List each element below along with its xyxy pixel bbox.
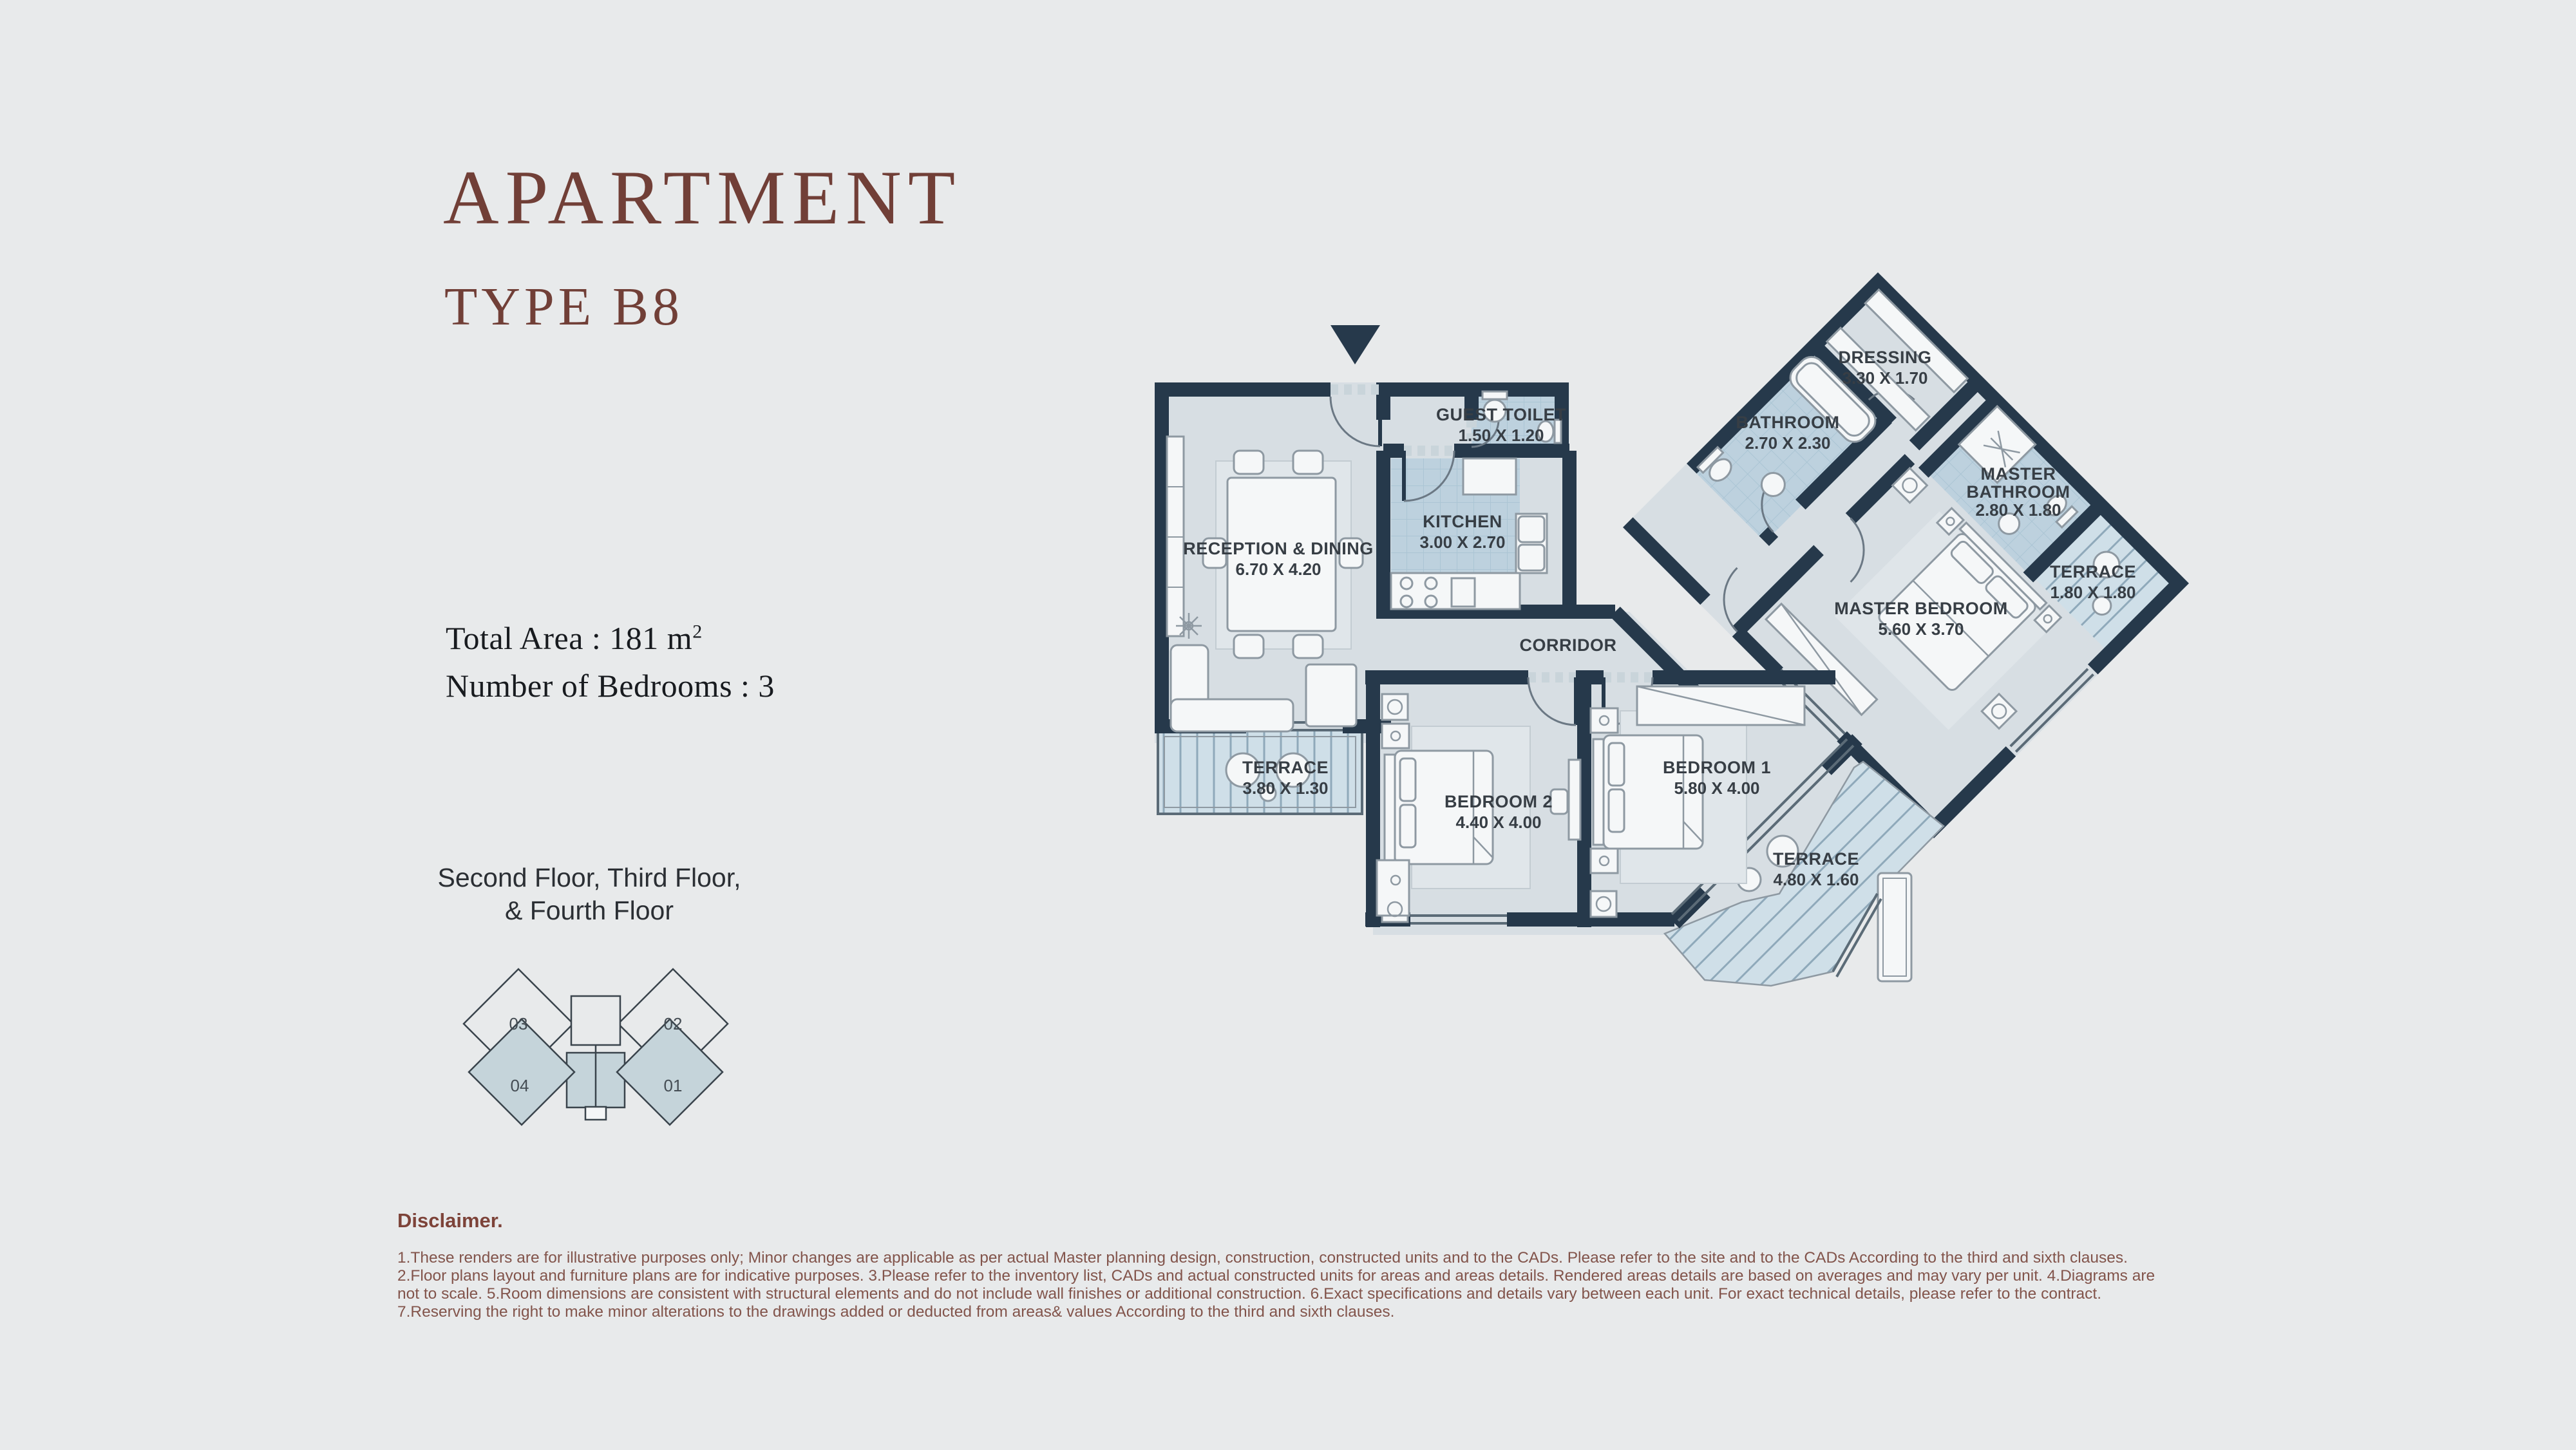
disclaimer-line-3: not to scale. 5.Room dimensions are cons… xyxy=(397,1285,2175,1303)
floor-availability: Second Floor, Third Floor, & Fourth Floo… xyxy=(422,862,757,927)
page-subtitle: TYPE B8 xyxy=(444,276,683,338)
label-master-bathroom: MASTER BATHROOM 2.80 X 1.80 xyxy=(1967,465,2070,519)
master-bedroom-dims: 5.60 X 3.70 xyxy=(1834,619,2008,639)
total-area: Total Area : 181 m2 xyxy=(446,619,703,657)
terrace-master-dims: 1.80 X 1.80 xyxy=(2050,582,2136,603)
terrace-reception-name: TERRACE xyxy=(1242,757,1329,778)
bedroom-2-name: BEDROOM 2 xyxy=(1444,791,1553,812)
keyplan-unit-04-label: 04 xyxy=(511,1076,529,1095)
terrace-master-name: TERRACE xyxy=(2050,561,2136,582)
label-kitchen: KITCHEN 3.00 X 2.70 xyxy=(1420,511,1506,552)
terrace-reception-dims: 3.80 X 1.30 xyxy=(1242,778,1329,798)
label-corridor: CORRIDOR xyxy=(1520,635,1617,655)
label-dressing: DRESSING 3.30 X 1.70 xyxy=(1838,347,1931,388)
disclaimer: Disclaimer. 1.These renders are for illu… xyxy=(397,1209,2175,1321)
kitchen-dims: 3.00 X 2.70 xyxy=(1420,532,1506,552)
label-terrace-bedroom: TERRACE 4.80 X 1.60 xyxy=(1773,849,1859,890)
plant-icon xyxy=(1176,613,1202,639)
bedroom-2-dims: 4.40 X 4.00 xyxy=(1444,812,1553,833)
master-bathroom-dims: 2.80 X 1.80 xyxy=(1967,501,2070,519)
guest-toilet-dims: 1.50 X 1.20 xyxy=(1436,425,1566,446)
label-bedroom-2: BEDROOM 2 4.40 X 4.00 xyxy=(1444,791,1553,833)
floor-availability-line1: Second Floor, Third Floor, xyxy=(422,862,757,894)
master-bedroom-name: MASTER BEDROOM xyxy=(1834,598,2008,619)
keyplan-unit-02-label: 02 xyxy=(664,1014,683,1033)
entrance-arrow-icon xyxy=(1331,325,1380,364)
label-guest-toilet: GUEST TOILET 1.50 X 1.20 xyxy=(1436,404,1566,446)
bedroom-1-dims: 5.80 X 4.00 xyxy=(1663,778,1771,798)
corridor-name: CORRIDOR xyxy=(1520,635,1617,655)
master-bathroom-name1: MASTER xyxy=(1967,465,2070,483)
keyplan-unit-03-label: 03 xyxy=(509,1014,528,1033)
keyplan-entry-block xyxy=(585,1107,606,1120)
disclaimer-line-2: 2.Floor plans layout and furniture plans… xyxy=(397,1267,2175,1285)
disclaimer-heading: Disclaimer. xyxy=(397,1209,2175,1232)
terrace-bedroom-dims: 4.80 X 1.60 xyxy=(1773,869,1859,890)
label-master-bedroom: MASTER BEDROOM 5.60 X 3.70 xyxy=(1834,598,2008,639)
dressing-name: DRESSING xyxy=(1838,347,1931,368)
total-area-text: Total Area : 181 m xyxy=(446,620,692,656)
disclaimer-line-4: 7.Reserving the right to make minor alte… xyxy=(397,1303,2175,1321)
label-reception: RECEPTION & DINING 6.70 X 4.20 xyxy=(1183,538,1374,579)
label-terrace-master: TERRACE 1.80 X 1.80 xyxy=(2050,561,2136,603)
master-bathroom-name2: BATHROOM xyxy=(1967,483,2070,501)
floor-availability-line2: & Fourth Floor xyxy=(422,894,757,927)
reception-dims: 6.70 X 4.20 xyxy=(1183,559,1374,579)
label-terrace-reception: TERRACE 3.80 X 1.30 xyxy=(1242,757,1329,798)
disclaimer-line-1: 1.These renders are for illustrative pur… xyxy=(397,1249,2175,1267)
keyplan-unit-01-label: 01 xyxy=(664,1076,683,1095)
total-area-sup: 2 xyxy=(692,621,703,642)
label-bedroom-1: BEDROOM 1 5.80 X 4.00 xyxy=(1663,757,1771,798)
bedroom-1-name: BEDROOM 1 xyxy=(1663,757,1771,778)
page-title: APARTMENT xyxy=(443,153,961,242)
dressing-dims: 3.30 X 1.70 xyxy=(1838,368,1931,388)
guest-toilet-name: GUEST TOILET xyxy=(1436,404,1566,425)
bathroom-name: BATHROOM xyxy=(1736,412,1840,433)
bathroom-dims: 2.70 X 2.30 xyxy=(1736,433,1840,453)
kitchen-name: KITCHEN xyxy=(1420,511,1506,532)
bedrooms-count: Number of Bedrooms : 3 xyxy=(446,667,775,704)
terrace-bedroom-name: TERRACE xyxy=(1773,849,1859,869)
keyplan-core xyxy=(571,996,620,1045)
key-plan: 03 02 04 01 xyxy=(422,963,770,1156)
reception-name: RECEPTION & DINING xyxy=(1183,538,1374,559)
floor-plan xyxy=(1140,264,2209,998)
label-bathroom: BATHROOM 2.70 X 2.30 xyxy=(1736,412,1840,453)
